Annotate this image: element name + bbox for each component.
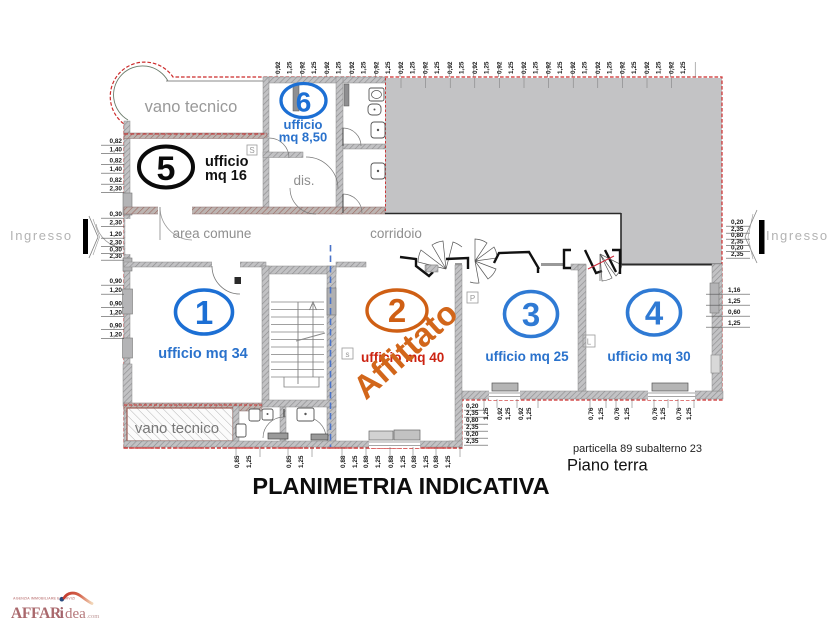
svg-text:1,20: 1,20 [110,310,123,317]
svg-text:1,25: 1,25 [483,407,490,420]
svg-text:area comune: area comune [173,226,252,241]
svg-text:1,25: 1,25 [533,61,540,74]
svg-text:0,92: 0,92 [423,61,430,74]
svg-text:0,88: 0,88 [411,455,418,468]
svg-text:1,25: 1,25 [459,61,466,74]
svg-text:1,40: 1,40 [110,166,123,173]
svg-text:ufficio mq 30: ufficio mq 30 [607,349,690,364]
svg-text:0,82: 0,82 [110,158,123,165]
svg-text:0,20: 0,20 [731,219,744,226]
svg-text:1,16: 1,16 [728,287,741,294]
svg-text:0,88: 0,88 [363,455,370,468]
svg-text:1,25: 1,25 [680,61,687,74]
svg-text:0,60: 0,60 [728,309,741,316]
svg-text:ufficio mq 34: ufficio mq 34 [158,346,247,362]
svg-text:AFFAR: AFFAR [11,605,62,622]
svg-text:1,25: 1,25 [445,455,452,468]
svg-text:0,20: 0,20 [466,431,479,438]
svg-text:0,92: 0,92 [349,61,356,74]
svg-text:0,20: 0,20 [466,403,479,410]
svg-text:1,25: 1,25 [375,455,382,468]
svg-text:1,25: 1,25 [631,61,638,74]
svg-text:1,25: 1,25 [686,407,693,420]
svg-text:1,25: 1,25 [606,61,613,74]
svg-text:2,30: 2,30 [110,253,123,260]
svg-text:0,92: 0,92 [570,61,577,74]
svg-text:0,92: 0,92 [300,61,307,74]
svg-text:0,90: 0,90 [110,301,123,308]
svg-text:mq 8,50: mq 8,50 [279,130,327,145]
svg-text:0,82: 0,82 [110,177,123,184]
svg-text:0,92: 0,92 [275,61,282,74]
svg-text:1,40: 1,40 [110,147,123,154]
svg-text:P: P [470,294,475,303]
svg-text:dis.: dis. [293,173,314,188]
svg-text:i: i [60,605,65,622]
svg-text:S: S [249,146,254,155]
svg-text:2,30: 2,30 [110,240,123,247]
svg-text:0,88: 0,88 [340,455,347,468]
svg-text:1,25: 1,25 [483,61,490,74]
svg-text:2,35: 2,35 [466,424,479,431]
svg-text:0,76: 0,76 [588,407,595,420]
svg-text:1,25: 1,25 [360,61,367,74]
svg-text:0,92: 0,92 [644,61,651,74]
svg-text:0,90: 0,90 [110,323,123,330]
svg-text:dea: dea [65,606,86,622]
svg-text:0,92: 0,92 [521,61,528,74]
svg-text:L: L [587,338,592,347]
svg-text:1,20: 1,20 [110,231,123,238]
svg-text:0,92: 0,92 [472,61,479,74]
svg-text:0,76: 0,76 [676,407,683,420]
svg-text:1,25: 1,25 [336,61,343,74]
svg-text:2,30: 2,30 [110,186,123,193]
svg-text:0,92: 0,92 [546,61,553,74]
svg-text:1,25: 1,25 [624,407,631,420]
svg-text:1,25: 1,25 [557,61,564,74]
svg-text:0,88: 0,88 [433,455,440,468]
svg-text:vano tecnico: vano tecnico [135,420,219,437]
svg-text:3: 3 [522,296,540,333]
svg-text:0,92: 0,92 [373,61,380,74]
svg-text:particella 89 subalterno 23: particella 89 subalterno 23 [573,443,702,455]
svg-text:1,25: 1,25 [311,61,318,74]
svg-text:1,25: 1,25 [728,298,741,305]
svg-text:mq 16: mq 16 [205,168,247,184]
svg-text:2,35: 2,35 [466,438,479,445]
svg-text:0,76: 0,76 [614,407,621,420]
svg-text:0,85: 0,85 [286,455,293,468]
svg-text:Piano terra: Piano terra [567,457,649,475]
svg-text:Ingresso: Ingresso [766,228,829,243]
svg-text:1,25: 1,25 [434,61,441,74]
svg-text:1,25: 1,25 [246,455,253,468]
svg-text:vano tecnico: vano tecnico [145,98,238,116]
svg-text:6: 6 [296,87,312,118]
svg-text:1,25: 1,25 [582,61,589,74]
svg-text:0,92: 0,92 [595,61,602,74]
svg-text:s: s [346,350,350,359]
svg-text:0,92: 0,92 [518,407,525,420]
svg-text:0,92: 0,92 [324,61,331,74]
svg-text:1,25: 1,25 [410,61,417,74]
svg-text:0,76: 0,76 [652,407,659,420]
svg-text:1,25: 1,25 [508,61,515,74]
svg-text:0,30: 0,30 [110,211,123,218]
svg-text:1,25: 1,25 [298,455,305,468]
svg-text:0,92: 0,92 [619,61,626,74]
svg-text:1,25: 1,25 [400,455,407,468]
svg-text:2,35: 2,35 [466,410,479,417]
svg-text:.com: .com [87,613,100,620]
svg-text:1,25: 1,25 [728,320,741,327]
svg-text:corridoio: corridoio [370,226,422,241]
svg-text:2,30: 2,30 [110,220,123,227]
svg-text:0,85: 0,85 [234,455,241,468]
svg-text:1,25: 1,25 [423,455,430,468]
svg-text:1,25: 1,25 [505,407,512,420]
svg-text:1,25: 1,25 [385,61,392,74]
svg-text:2: 2 [388,292,406,329]
svg-text:Ingresso: Ingresso [10,228,73,243]
svg-text:1,25: 1,25 [352,455,359,468]
svg-text:0,92: 0,92 [497,407,504,420]
svg-text:ufficio mq 25: ufficio mq 25 [485,349,569,364]
svg-text:0,92: 0,92 [669,61,676,74]
svg-text:0,92: 0,92 [496,61,503,74]
svg-text:1,20: 1,20 [110,287,123,294]
svg-text:0,92: 0,92 [447,61,454,74]
svg-text:PLANIMETRIA INDICATIVA: PLANIMETRIA INDICATIVA [252,473,549,499]
svg-text:0,90: 0,90 [110,278,123,285]
svg-text:4: 4 [645,295,664,332]
svg-text:1,20: 1,20 [110,332,123,339]
svg-text:1,25: 1,25 [656,61,663,74]
svg-text:1,25: 1,25 [287,61,294,74]
svg-text:1,25: 1,25 [660,407,667,420]
svg-text:0,80: 0,80 [466,417,479,424]
svg-text:0,92: 0,92 [398,61,405,74]
svg-text:2,35: 2,35 [731,251,744,258]
svg-text:0,82: 0,82 [110,138,123,145]
svg-text:1,25: 1,25 [526,407,533,420]
svg-text:1,25: 1,25 [598,407,605,420]
svg-text:5: 5 [157,150,176,188]
svg-text:1: 1 [195,294,213,331]
svg-text:0,88: 0,88 [388,455,395,468]
